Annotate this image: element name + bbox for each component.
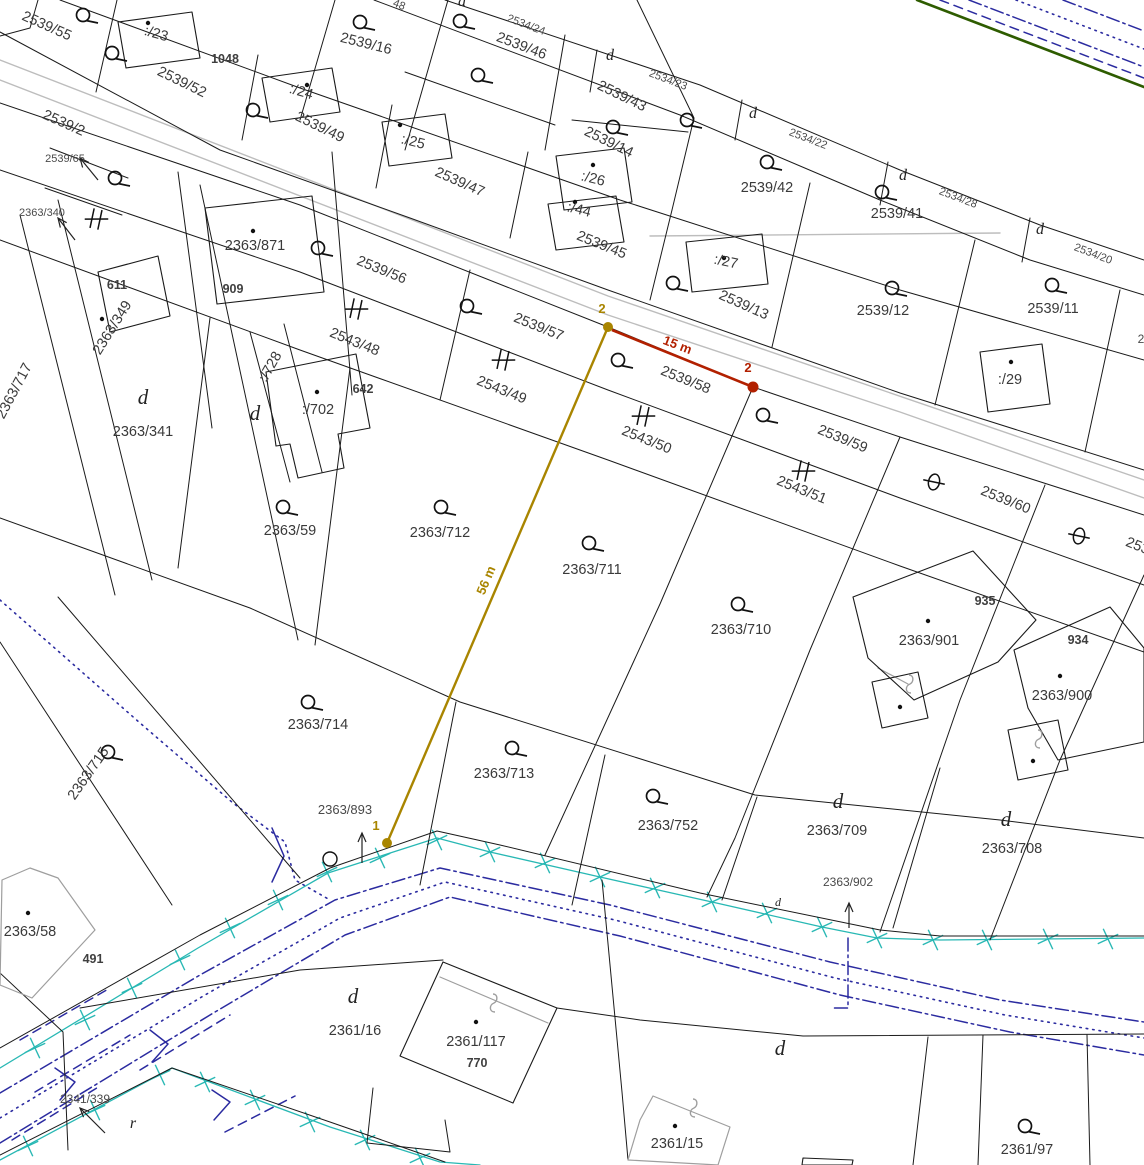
fence-x-stroke <box>18 1136 39 1157</box>
building-outline <box>1008 720 1068 780</box>
utility-dotted-line <box>1016 0 1144 49</box>
house-number: 1048 <box>211 52 239 66</box>
parcel-label: :/702 <box>302 402 334 418</box>
sluzka-icon <box>876 186 898 201</box>
parcel-label: 2539/59 <box>815 422 870 456</box>
parcel-boundary-line <box>772 183 810 347</box>
parcel-label: 2363/711 <box>562 562 621 578</box>
theta-bar <box>923 480 945 485</box>
parcel-label: 2543/49 <box>474 373 529 407</box>
house-number: 935 <box>975 594 996 608</box>
parcel-label: 2539/11 <box>1027 301 1078 317</box>
parcel-label: :/29 <box>998 372 1022 388</box>
road-edge-line <box>650 233 1000 236</box>
gate-bar <box>90 208 94 228</box>
gate-icon <box>630 404 657 428</box>
fence-x-icon <box>170 950 191 971</box>
sluzka-icon <box>435 501 457 516</box>
parcel-label: 2539/55 <box>19 8 73 44</box>
fence-x-icon <box>590 867 611 888</box>
parcel-label: 2361/15 <box>651 1136 703 1152</box>
building-point <box>898 705 902 709</box>
parcel-boundary-line <box>405 72 555 125</box>
parcel-label: 2539/49 <box>293 109 347 146</box>
fence-x-icon <box>18 1136 39 1157</box>
sluzka-tail <box>444 513 456 516</box>
fence-x-icon <box>268 890 289 911</box>
gate-bar <box>637 405 641 425</box>
sluzka-tail <box>616 133 628 136</box>
parcel-label: 2539/47 <box>432 164 486 200</box>
parcel-boundary-line <box>405 0 448 150</box>
utility-elbow-line <box>150 1030 168 1062</box>
parcel-label: 2361/117 <box>446 1034 505 1050</box>
gate-bar <box>797 460 801 480</box>
label-layer: 2539/55:/232539/522539/162539/462534/244… <box>0 0 1144 1158</box>
landuse-d-label: d <box>138 385 149 409</box>
sluzka-circle <box>302 696 315 709</box>
sluzka-icon <box>1019 1120 1041 1135</box>
building-outline <box>400 962 557 1103</box>
landuse-d-label: d <box>833 789 844 813</box>
fence-x-stroke <box>245 1090 266 1111</box>
utility-dashdot-line <box>1063 0 1144 31</box>
building-point <box>100 317 104 321</box>
parcel-boundary-line <box>420 702 456 885</box>
parcel-label: 253 <box>1123 534 1144 558</box>
parcel-label: 2363/901 <box>899 633 959 649</box>
sluzka-tail <box>470 312 482 315</box>
theta-bar <box>1068 534 1090 539</box>
sluzka-tail <box>286 513 298 516</box>
parcel-label: 2539/43 <box>595 78 649 115</box>
parcel-boundary-line <box>58 597 300 878</box>
arrow-shaft <box>58 218 75 240</box>
fence-x-icon <box>245 1090 266 1111</box>
sluzka-tail <box>515 754 527 757</box>
sluzka-icon <box>647 790 669 805</box>
parcel-boundary-line <box>913 1037 928 1165</box>
parcel-label: :/25 <box>399 131 426 152</box>
parcel-label: 2363/871 <box>225 238 285 254</box>
pointer-arrow-icon <box>58 218 75 240</box>
fence-x-stroke <box>268 890 289 911</box>
parcel-label: 2 <box>1138 332 1144 346</box>
parcel-label: 2363/752 <box>638 818 698 834</box>
parcel-label: 2363/900 <box>1032 688 1092 704</box>
survey-point-2-red <box>748 382 759 393</box>
gate-bar <box>350 298 354 318</box>
sluzka-circle <box>1046 279 1059 292</box>
parcel-label: :/26 <box>579 168 606 189</box>
parcel-label: 2363/709 <box>807 823 867 839</box>
sluzka-icon <box>354 16 376 31</box>
theta-icon <box>1067 526 1092 546</box>
sluzka-icon <box>732 598 754 613</box>
fence-x-icon <box>150 1065 171 1086</box>
building-point <box>1031 759 1035 763</box>
building-point <box>26 911 30 915</box>
sluzka-circle <box>757 409 770 422</box>
sluzka-circle <box>647 790 660 803</box>
sluzka-circle <box>277 501 290 514</box>
parcel-label: :/728 <box>256 349 286 385</box>
fence-x-stroke <box>170 950 191 971</box>
landuse-d-label: d <box>348 984 359 1008</box>
landuse-d-label: d <box>458 0 467 10</box>
survey-point-1 <box>382 838 392 848</box>
sluzka-circle <box>1019 1120 1032 1133</box>
sluzka-tail <box>311 708 323 711</box>
sluzka-circle <box>106 47 119 60</box>
parcel-boundary-line <box>893 768 940 928</box>
parcel-boundary-line <box>1022 218 1030 262</box>
parcel-label: 2539/12 <box>857 303 909 319</box>
sluzka-icon <box>454 15 476 30</box>
road-edge-line <box>0 60 1144 480</box>
sluzka-tail <box>592 549 604 552</box>
fence-x-stroke <box>220 918 241 939</box>
landuse-d-label: d <box>775 895 782 909</box>
building-outline <box>1014 607 1144 760</box>
sluzka-icon <box>1046 279 1068 294</box>
fence-x-stroke <box>150 1065 171 1086</box>
parcel-label: 2363/58 <box>4 924 56 940</box>
sluzka-tail <box>321 254 333 257</box>
gate-cross <box>345 304 369 314</box>
fence-x-icon <box>122 978 143 999</box>
parcel-label: 2363/902 <box>823 875 873 889</box>
sluzka-circle <box>472 69 485 82</box>
sluzka-tail <box>481 81 493 84</box>
parcel-label: 2363/893 <box>318 802 372 817</box>
building-point <box>1009 360 1013 364</box>
gray-building-outline <box>628 1096 730 1165</box>
parcel-label: 2539/56 <box>354 253 409 287</box>
parcel-boundary-line <box>735 100 742 140</box>
gate-icon <box>490 348 517 372</box>
fence-x-stroke <box>702 892 723 913</box>
sluzka-circle <box>354 16 367 29</box>
landuse-d-label: d <box>899 167 908 184</box>
squiggle-icon <box>1035 730 1042 748</box>
parcel-label: 2539/57 <box>511 310 566 344</box>
parcel-label: 2341/339 <box>60 1092 110 1106</box>
sluzka-tail <box>1028 1132 1040 1135</box>
sluzka-icon <box>302 696 324 711</box>
parcel-label: 2543/50 <box>619 423 674 457</box>
parcel-boundary-line <box>1085 290 1120 452</box>
survey-circle-icon <box>323 852 337 866</box>
building-point <box>1058 674 1062 678</box>
fence-line <box>0 838 1144 1068</box>
landuse-d-label: d <box>749 105 758 122</box>
parcel-label: 2363/340 <box>19 207 65 219</box>
parcel-label: 2539/16 <box>339 30 394 58</box>
survey-point-2 <box>603 322 613 332</box>
sluzka-icon <box>247 104 269 119</box>
parcel-boundary-line <box>590 50 597 92</box>
parcel-label: :/27 <box>712 252 739 273</box>
sluzka-circle <box>506 742 519 755</box>
parcel-label: 2539/41 <box>871 206 923 222</box>
parcel-label: 2363/349 <box>90 298 136 358</box>
utility-dashdot-line <box>0 868 1144 1093</box>
gate-cross <box>492 355 516 365</box>
gate-icon <box>343 297 370 321</box>
fence-x-stroke <box>122 978 143 999</box>
measurement-label-15m: 15 m <box>661 332 694 357</box>
parcel-label: 2363/708 <box>982 841 1042 857</box>
sluzka-circle <box>435 501 448 514</box>
pointer-arrow-icon <box>358 833 366 863</box>
sluzka-circle <box>461 300 474 313</box>
fence-x-icon <box>220 918 241 939</box>
point-label-1: 1 <box>372 818 379 833</box>
parcel-label: 2363/710 <box>711 622 771 638</box>
sluzka-circle <box>667 277 680 290</box>
utility-dashdot-line <box>0 897 1144 1143</box>
parcel-label: 2539/60 <box>978 483 1033 517</box>
building-point <box>398 123 402 127</box>
parcel-label: 2539/13 <box>716 287 770 323</box>
utility-dash-line <box>940 0 1144 78</box>
point-label-2-red: 2 <box>744 360 751 375</box>
squiggle-icon <box>690 1099 697 1117</box>
gate-bar <box>497 349 501 369</box>
sluzka-tail <box>86 21 98 24</box>
building-point <box>673 1124 677 1128</box>
sluzka-circle <box>583 537 596 550</box>
parcel-boundary-line <box>0 170 1144 585</box>
parcel-label: 2534/20 <box>1072 241 1113 266</box>
parcel-label: 2543/51 <box>774 473 829 507</box>
house-number: 934 <box>1068 633 1089 647</box>
parcel-boundary-line <box>284 324 322 472</box>
parcel-label: 2363/712 <box>410 525 470 541</box>
sluzka-tail <box>770 168 782 171</box>
sluzka-tail <box>766 421 778 424</box>
sluzka-icon <box>77 9 99 24</box>
parcel-boundary-line <box>0 103 1144 515</box>
parcel-label: 2539/42 <box>741 180 793 196</box>
parcel-boundary-line <box>935 240 975 405</box>
sluzka-tail <box>885 198 897 201</box>
parcel-label: 2534/28 <box>937 185 978 210</box>
parcel-boundary-line <box>300 0 335 120</box>
landuse-d-label: d <box>250 401 261 425</box>
house-number: 909 <box>223 282 244 296</box>
building-outline <box>853 551 1036 700</box>
parcel-label: 2363/715 <box>65 744 113 803</box>
house-number: 611 <box>107 278 127 292</box>
fence-x-stroke <box>590 867 611 888</box>
utility-dash-line <box>140 1015 230 1070</box>
parcel-label: 2539/45 <box>574 228 629 262</box>
parcel-boundary-line <box>545 35 565 150</box>
landuse-r-label: r <box>130 1115 137 1132</box>
green-boundary-line <box>917 0 1144 87</box>
utility-dashdot-line <box>969 0 1144 67</box>
sluzka-tail <box>656 802 668 805</box>
sluzka-icon <box>506 742 528 757</box>
sluzka-tail <box>895 294 907 297</box>
parcel-boundary-line <box>20 215 115 595</box>
parcel-boundary-line <box>557 1008 1144 1036</box>
parcel-label: 2534/23 <box>647 67 688 92</box>
sluzka-tail <box>111 758 123 761</box>
sluzka-tail <box>1055 291 1067 294</box>
sluzka-circle <box>247 104 260 117</box>
parcel-label: 2539/14 <box>582 124 636 161</box>
squiggle-icon <box>490 994 497 1012</box>
cadastral-map: 56 m1215 m22539/55:/232539/522539/162539… <box>0 0 1144 1165</box>
theta-icon <box>922 472 947 492</box>
parcel-label: 2363/341 <box>113 424 173 440</box>
sluzka-tail <box>118 184 130 187</box>
parcel-label: 2539/2 <box>40 107 87 140</box>
building-point <box>591 163 595 167</box>
sluzka-tail <box>363 28 375 31</box>
parcel-label: 2361/16 <box>329 1023 381 1039</box>
sluzka-icon <box>109 172 131 187</box>
sluzka-tail <box>256 116 268 119</box>
gate-cross <box>632 411 656 421</box>
parcel-boundary-line <box>880 485 1045 932</box>
fence-x-stroke <box>25 1038 46 1059</box>
sluzka-icon <box>312 242 334 257</box>
fence-x-icon <box>25 1038 46 1059</box>
sluzka-tail <box>115 59 127 62</box>
utility-dotted-line <box>0 882 1144 1118</box>
sluzka-tail <box>463 27 475 30</box>
sluzka-icon <box>761 156 783 171</box>
parcel-label: 2539/52 <box>155 64 209 101</box>
parcel-label: :/23 <box>142 23 170 45</box>
fence-line <box>0 1068 480 1165</box>
utility-dashdot-line <box>833 938 848 1008</box>
parcel-label: 2363/713 <box>474 766 534 782</box>
landuse-d-label: d <box>1036 221 1045 238</box>
house-number: 491 <box>83 952 104 966</box>
building-point <box>926 619 930 623</box>
sluzka-icon <box>461 300 483 315</box>
point-label-2: 2 <box>598 301 605 316</box>
parcel-boundary-line <box>178 172 212 428</box>
house-number: 770 <box>467 1056 488 1070</box>
fence-x-icon <box>702 892 723 913</box>
parcel-label: 2539/65 <box>45 153 85 165</box>
parcel-boundary-line <box>178 318 210 568</box>
utility-elbow-line <box>212 1090 230 1120</box>
building-point <box>315 390 319 394</box>
gray-detail-line <box>878 668 908 684</box>
sluzka-icon <box>607 121 629 136</box>
parcel-boundary-line <box>650 210 672 300</box>
gray-detail-line <box>440 977 548 1023</box>
sluzka-circle <box>607 121 620 134</box>
boundary-layer <box>0 0 1144 1165</box>
parcel-boundary-line <box>722 797 757 900</box>
parcel-boundary-line <box>572 755 605 905</box>
parcel-label: 2363/714 <box>288 717 348 733</box>
sluzka-circle <box>454 15 467 28</box>
parcel-label: 2363/59 <box>264 523 316 539</box>
building-point <box>474 1020 478 1024</box>
sluzka-icon <box>472 69 494 84</box>
landuse-d-label: d <box>606 47 615 64</box>
parcel-label: :/44 <box>565 199 592 220</box>
sluzka-tail <box>621 366 633 369</box>
sluzka-circle <box>732 598 745 611</box>
sluzka-tail <box>741 610 753 613</box>
building-point <box>251 229 255 233</box>
map-canvas: 56 m1215 m22539/55:/232539/522539/162539… <box>0 0 1144 1165</box>
sluzka-icon <box>612 354 634 369</box>
sluzka-icon <box>277 501 299 516</box>
sluzka-icon <box>667 277 689 292</box>
sluzka-circle <box>612 354 625 367</box>
gate-cross <box>85 214 109 224</box>
sluzka-icon <box>757 409 779 424</box>
gate-cross <box>792 466 816 476</box>
gate-icon <box>83 207 110 231</box>
sluzka-icon <box>681 114 703 129</box>
parcel-label: 2363/717 <box>0 361 36 422</box>
parcel-label: 2534/22 <box>787 126 828 151</box>
parcel-boundary-line <box>978 1035 983 1165</box>
landuse-d-label: d <box>775 1036 786 1060</box>
parcel-boundary-line <box>1087 1035 1090 1165</box>
utility-layer <box>0 0 1144 1165</box>
parcel-label: 2361/97 <box>1001 1142 1053 1158</box>
sluzka-icon <box>583 537 605 552</box>
sluzka-circle <box>77 9 90 22</box>
house-number: 642 <box>353 382 374 396</box>
sluzka-tail <box>676 289 688 292</box>
sluzka-circle <box>761 156 774 169</box>
landuse-d-label: d <box>1001 807 1012 831</box>
building-outline <box>802 1158 853 1165</box>
sluzka-circle <box>886 282 899 295</box>
